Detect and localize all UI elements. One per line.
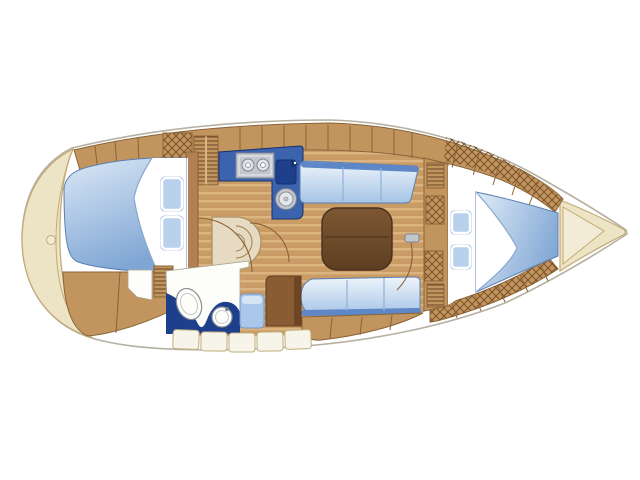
side-bench-tile (257, 332, 283, 351)
boat-floor-plan (0, 0, 640, 480)
shower-seat (240, 294, 264, 328)
side-bench-tile (201, 332, 227, 351)
side-bench (173, 330, 312, 352)
bulkhead-vent (427, 284, 444, 307)
table-latch (405, 234, 419, 242)
floor-plan-canvas (0, 0, 640, 480)
settee-front-rail (304, 311, 418, 313)
side-bench-tile (229, 333, 255, 352)
side-bench-tile (173, 330, 200, 350)
galley-stove (236, 153, 274, 178)
head-sink (212, 307, 232, 327)
fore-cabin-floor (448, 166, 476, 305)
nav-seat (212, 217, 261, 267)
top-settee (300, 161, 418, 203)
stern-hatch-ring (47, 236, 56, 245)
galley-sink (276, 189, 297, 210)
head-cabinet (266, 276, 301, 326)
side-bench-tile (285, 330, 312, 350)
bulkhead-vent (427, 163, 444, 188)
